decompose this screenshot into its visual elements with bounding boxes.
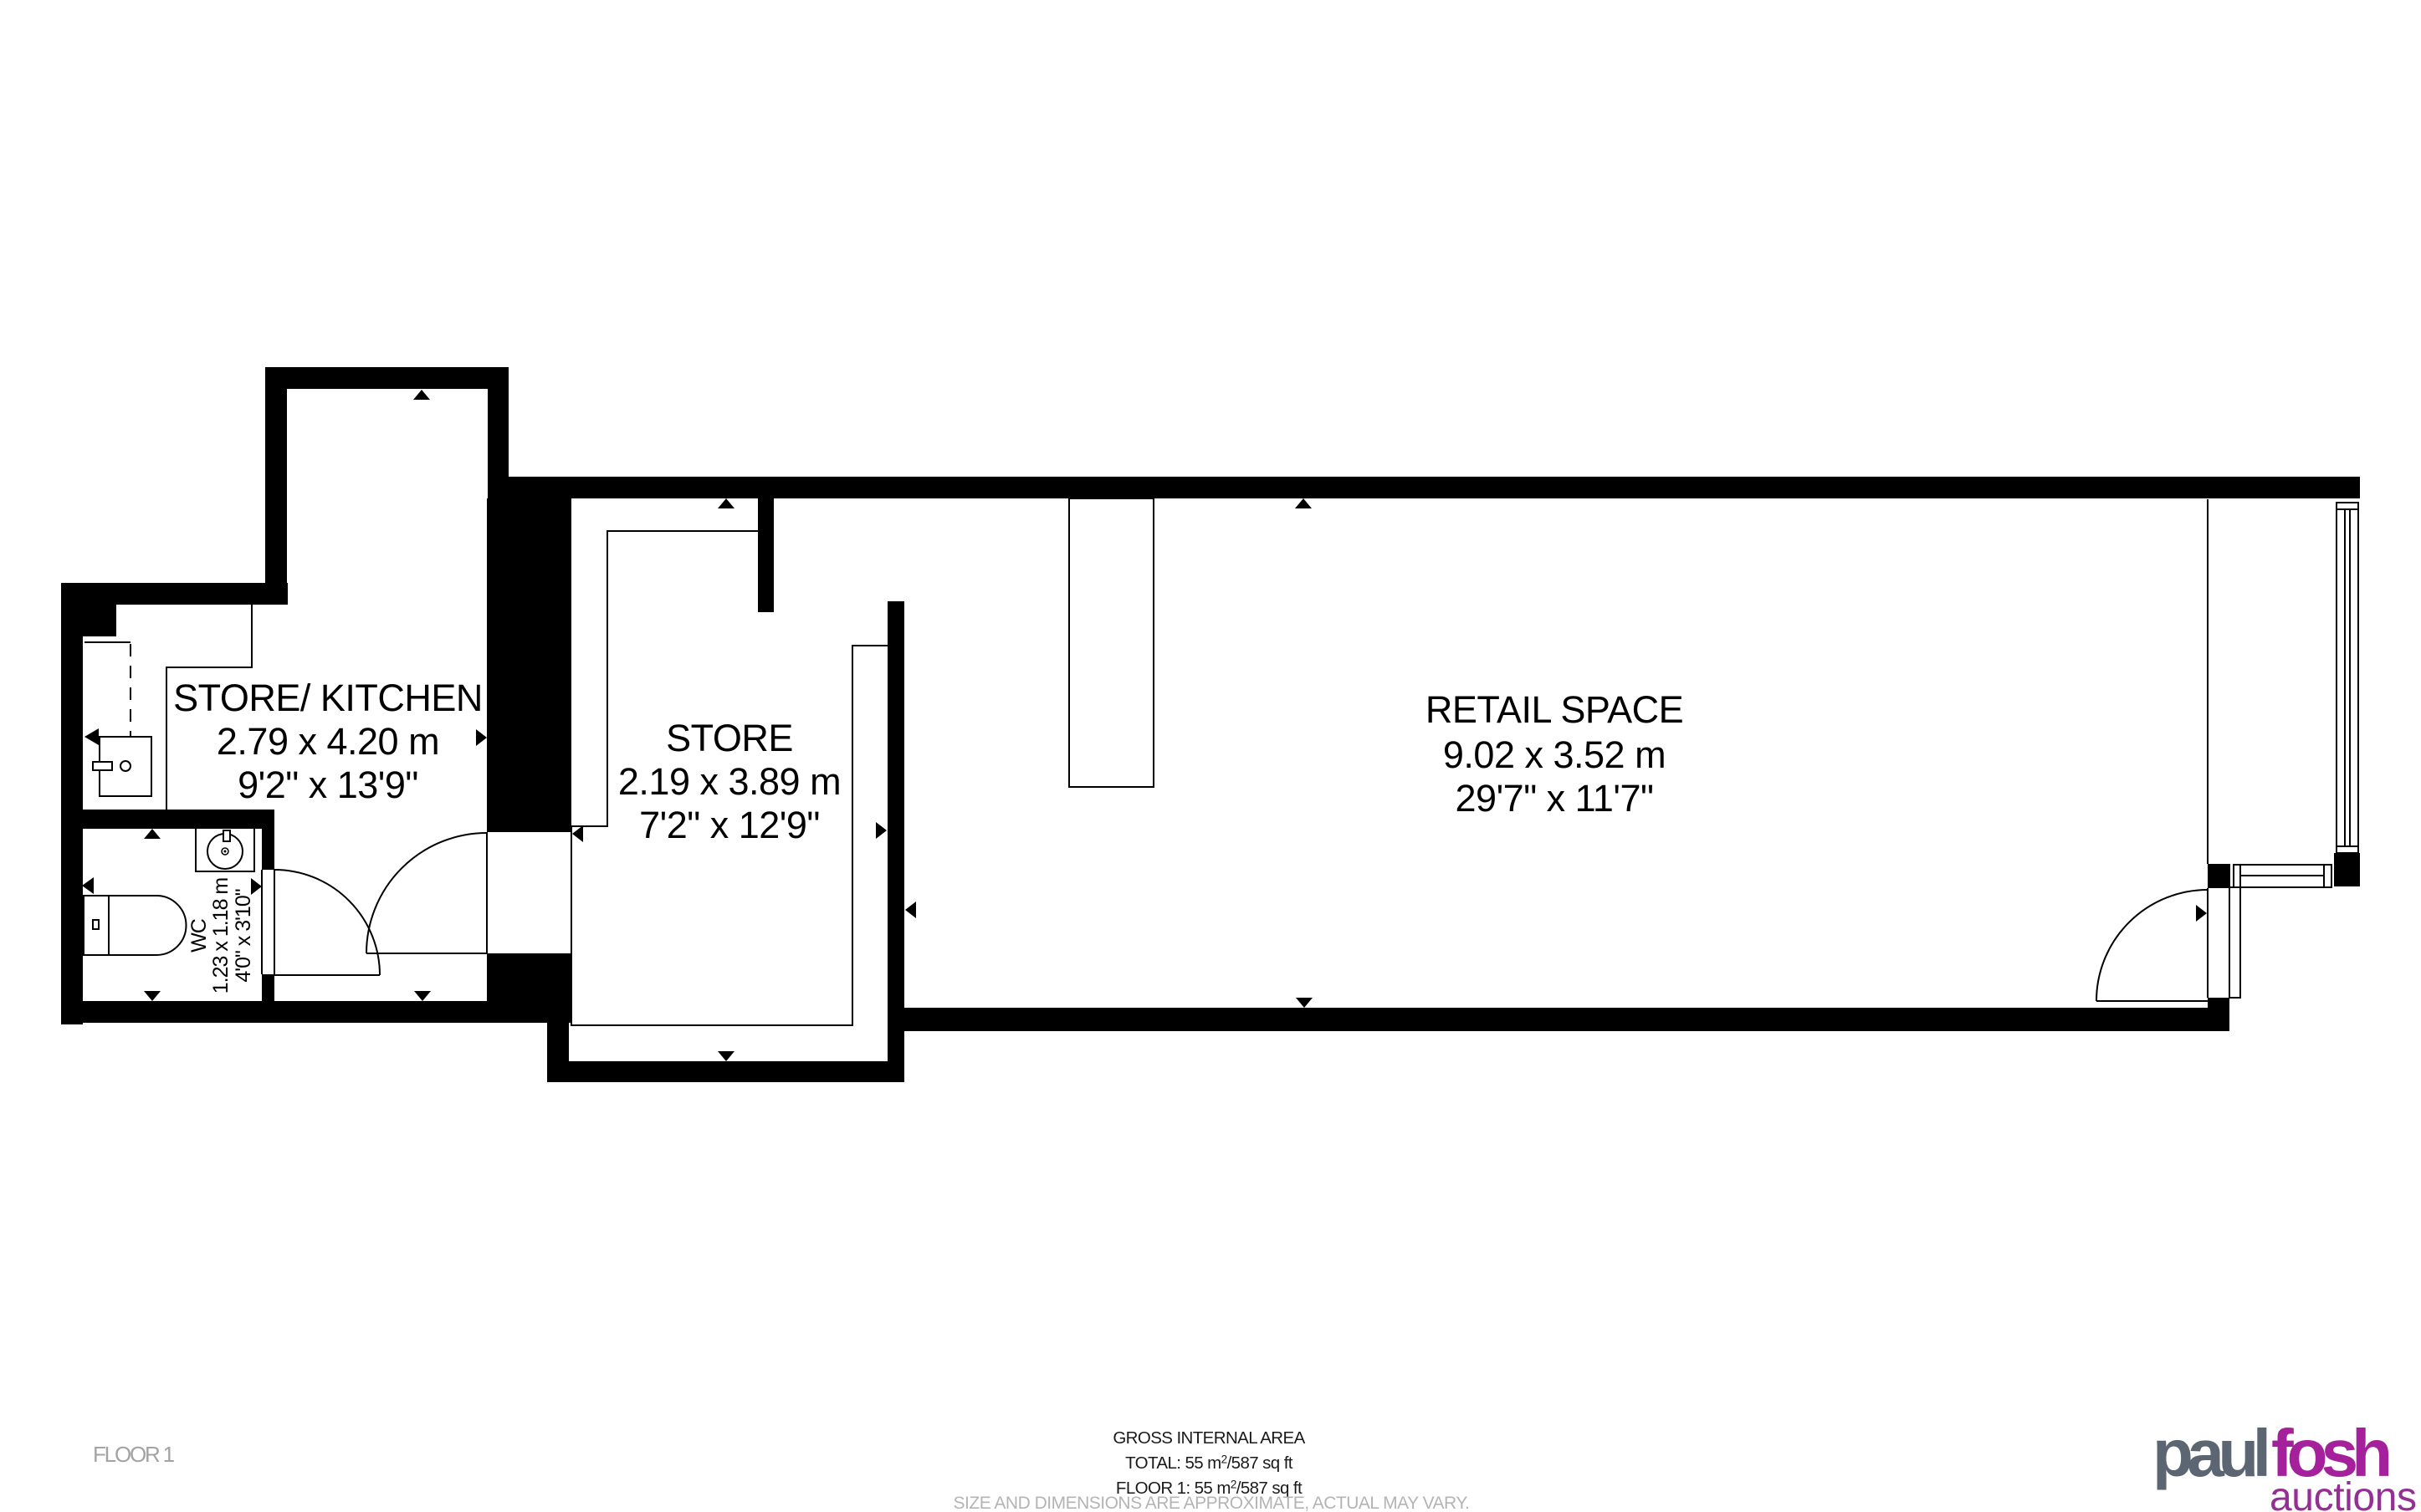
svg-text:SIZE AND DIMENSIONS ARE APPROX: SIZE AND DIMENSIONS ARE APPROXIMATE, ACT… [954,1494,1470,1512]
svg-text:TOTAL: 55 m2/587 sq ft: TOTAL: 55 m2/587 sq ft [1125,1453,1293,1474]
svg-text:GROSS INTERNAL AREA: GROSS INTERNAL AREA [1113,1428,1305,1448]
svg-text:paul: paul [2152,1416,2271,1490]
svg-text:FLOOR 1: FLOOR 1 [93,1442,175,1467]
svg-text:WC: WC [187,918,211,953]
svg-text:29'7" x 11'7": 29'7" x 11'7" [1456,777,1654,820]
svg-text:7'2" x 12'9": 7'2" x 12'9" [639,804,820,846]
svg-text:9.02 x 3.52 m: 9.02 x 3.52 m [1443,733,1666,776]
svg-text:2.19 x 3.89 m: 2.19 x 3.89 m [618,760,841,803]
svg-text:STORE: STORE [666,717,793,759]
svg-text:STORE/ KITCHEN: STORE/ KITCHEN [173,677,483,719]
svg-text:RETAIL SPACE: RETAIL SPACE [1425,688,1683,731]
svg-text:auctions: auctions [2270,1475,2417,1512]
svg-text:1.23 x 1.18 m: 1.23 x 1.18 m [209,878,233,994]
svg-text:9'2" x 13'9": 9'2" x 13'9" [238,764,418,806]
svg-text:2.79 x 4.20 m: 2.79 x 4.20 m [217,720,439,763]
svg-text:4'0" x 3'10": 4'0" x 3'10" [232,889,255,982]
